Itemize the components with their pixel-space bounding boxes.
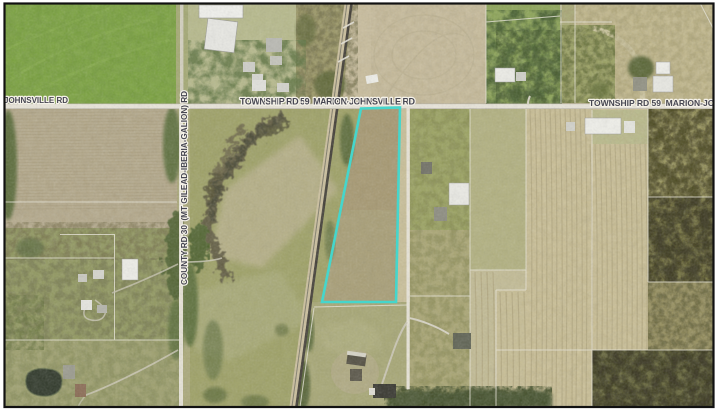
svg-text:TOWNSHIP RD 59 MARION-JOHNSVI: TOWNSHIP RD 59 MARION-JOHNSVILLE RD [240,97,416,107]
svg-text:TOWNSHIP RD 59 MARION-JOH: TOWNSHIP RD 59 MARION-JOH [589,98,720,108]
svg-text:COUNTY RD 30 (MT GILEAD-IBERI: COUNTY RD 30 (MT GILEAD-IBERIA-GALION) R… [180,91,189,285]
svg-text:JOHNSVILLE RD: JOHNSVILLE RD [4,96,68,105]
